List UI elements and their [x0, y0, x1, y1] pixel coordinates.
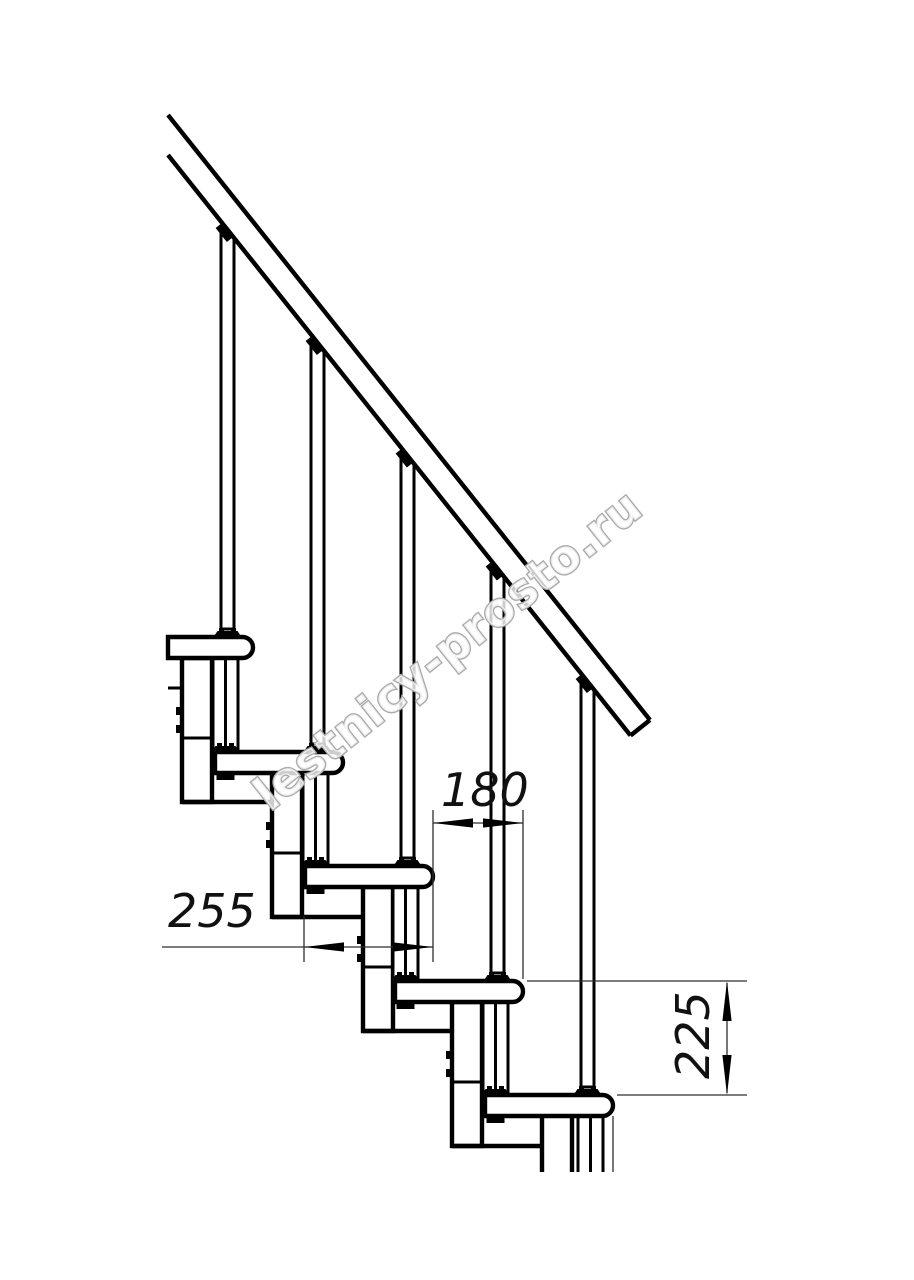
staircase-side-view-drawing: 180 255 225 lestnicy-prosto.ru	[0, 0, 914, 1280]
module-bolt	[357, 954, 363, 962]
stringer-module	[363, 887, 393, 1031]
dimension-arrow	[722, 981, 731, 1021]
stringer-module-cut	[542, 1116, 572, 1172]
dimension-label-180: 180	[441, 763, 529, 817]
module-bolt	[357, 936, 363, 944]
module-bolt	[176, 707, 182, 715]
tread	[168, 637, 253, 658]
stringer-module	[182, 658, 212, 802]
dimension-label-255: 255	[168, 884, 256, 938]
under-tread-nut	[487, 1116, 505, 1123]
under-tread-nut	[397, 1002, 415, 1009]
dimension-arrow	[304, 942, 344, 951]
baluster	[221, 230, 234, 629]
technical-drawing-page: 180 255 225 lestnicy-prosto.ru	[0, 0, 914, 1280]
module-bolt	[266, 840, 272, 848]
under-tread-nut	[217, 773, 235, 780]
baluster	[311, 343, 324, 744]
module-bolt	[446, 1069, 452, 1077]
tread	[305, 866, 433, 887]
tread	[395, 981, 523, 1002]
dimension-arrow	[722, 1055, 731, 1095]
stringer-module	[452, 1002, 482, 1146]
tread	[485, 1095, 613, 1116]
dimension-label-225: 225	[666, 991, 720, 1079]
dimension-step-run: 180	[433, 763, 529, 979]
dimension-step-rise: 225	[527, 981, 747, 1095]
module-bolt	[176, 725, 182, 733]
module-bolt	[266, 822, 272, 830]
module-bolt	[446, 1051, 452, 1059]
baluster	[581, 681, 594, 1087]
under-tread-nut	[307, 887, 325, 894]
support-strut	[483, 1001, 508, 1095]
support-strut	[213, 657, 238, 752]
support-strut-cut	[578, 1115, 603, 1172]
support-strut	[393, 886, 418, 981]
dimension-arrow	[433, 818, 473, 827]
